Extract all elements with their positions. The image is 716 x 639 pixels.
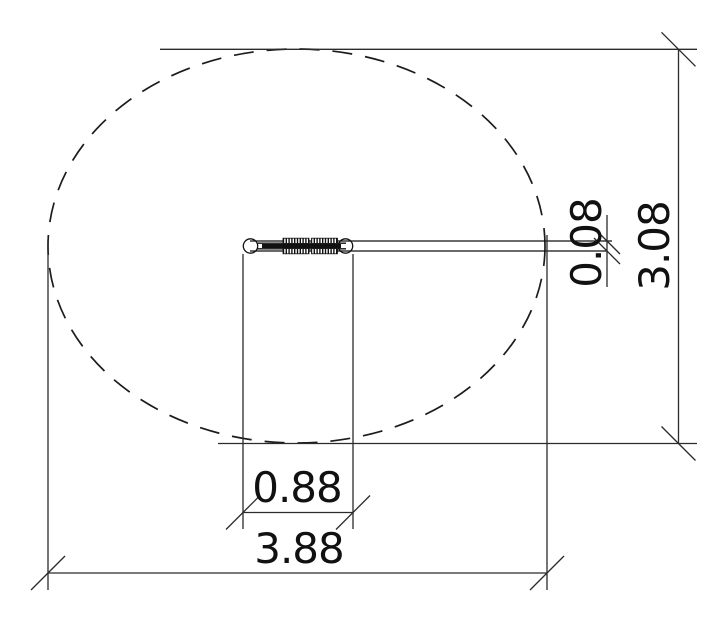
dimension-label-part-thickness: 0.08 (562, 198, 611, 288)
thread-section (283, 249, 309, 254)
dimension-overall-width: 3.88 (31, 235, 564, 590)
cad-drawing: 3.08 0.08 (0, 0, 716, 639)
cad-canvas: 3.08 0.08 (0, 0, 716, 639)
dimension-label-overall-depth: 3.08 (630, 201, 679, 291)
thread-section (312, 249, 338, 254)
thread-section (312, 238, 338, 243)
dimension-label-part-length: 0.88 (252, 463, 342, 512)
dimension-label-overall-width: 3.88 (254, 524, 344, 573)
dimension-overall-depth: 3.08 (160, 32, 697, 460)
thread-section (283, 238, 309, 243)
rod-body (262, 244, 341, 248)
dimension-part-length: 0.88 (226, 254, 370, 530)
